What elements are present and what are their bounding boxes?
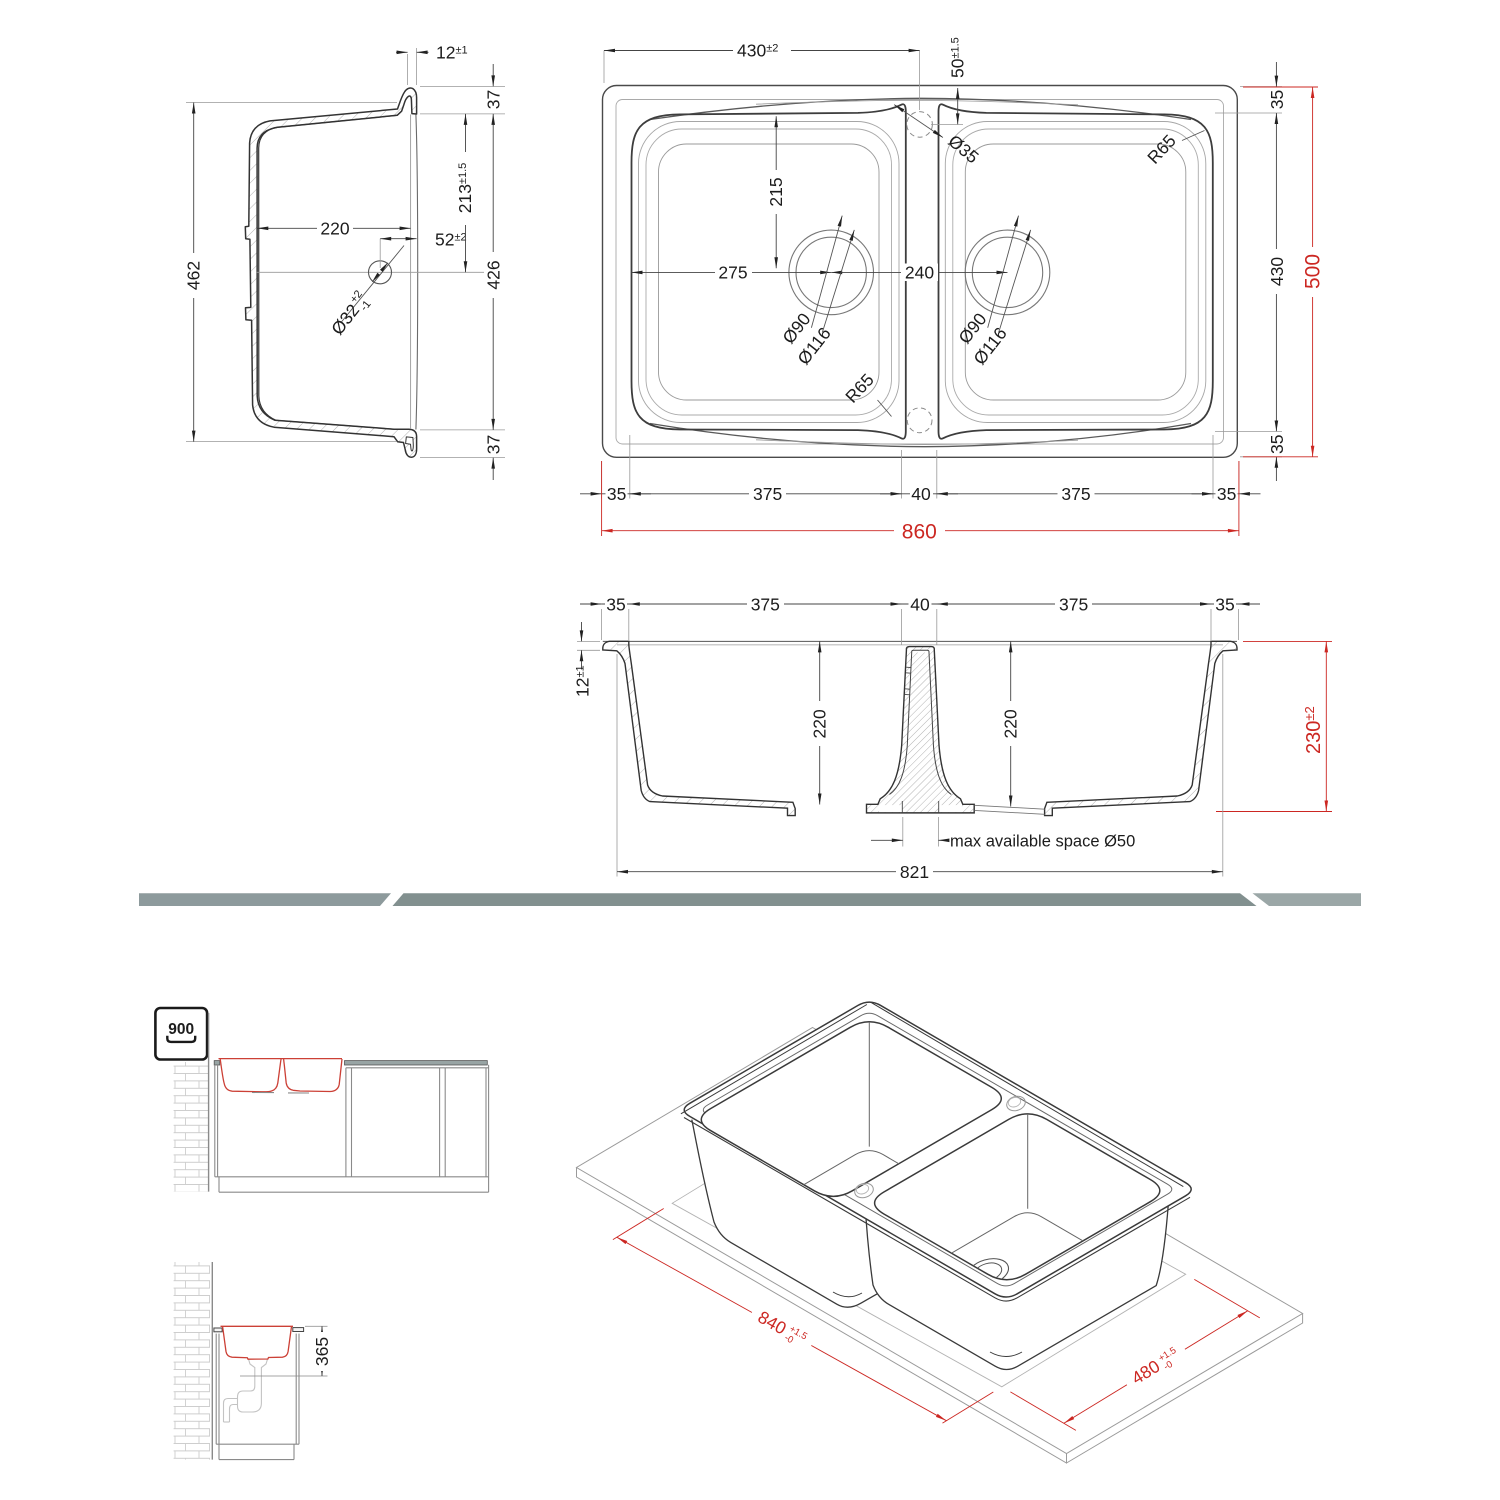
svg-text:37: 37 (484, 90, 504, 109)
svg-text:375: 375 (751, 594, 780, 614)
svg-text:462: 462 (184, 261, 204, 290)
svg-text:220: 220 (810, 709, 830, 738)
svg-text:35: 35 (1217, 484, 1236, 504)
svg-text:40: 40 (910, 594, 930, 614)
svg-text:37: 37 (484, 435, 504, 454)
svg-text:35: 35 (1267, 435, 1287, 454)
svg-text:220: 220 (1001, 709, 1021, 738)
svg-text:220: 220 (320, 219, 349, 239)
svg-text:35: 35 (606, 594, 625, 614)
svg-text:215: 215 (766, 177, 786, 206)
svg-text:240: 240 (905, 263, 934, 283)
svg-text:40: 40 (911, 484, 931, 504)
svg-text:430: 430 (1267, 257, 1287, 286)
svg-text:375: 375 (1061, 484, 1090, 504)
svg-text:35: 35 (1267, 90, 1287, 109)
svg-text:35: 35 (607, 484, 626, 504)
svg-text:375: 375 (753, 484, 782, 504)
svg-text:365: 365 (312, 1337, 332, 1366)
svg-text:900: 900 (168, 1021, 194, 1038)
svg-text:821: 821 (900, 862, 929, 882)
svg-text:860: 860 (902, 521, 937, 544)
svg-text:500: 500 (1302, 254, 1325, 289)
svg-text:35: 35 (1215, 594, 1234, 614)
svg-text:426: 426 (484, 260, 504, 289)
svg-text:max available space Ø50: max available space Ø50 (950, 832, 1135, 850)
svg-text:275: 275 (718, 263, 747, 283)
svg-text:375: 375 (1059, 594, 1088, 614)
